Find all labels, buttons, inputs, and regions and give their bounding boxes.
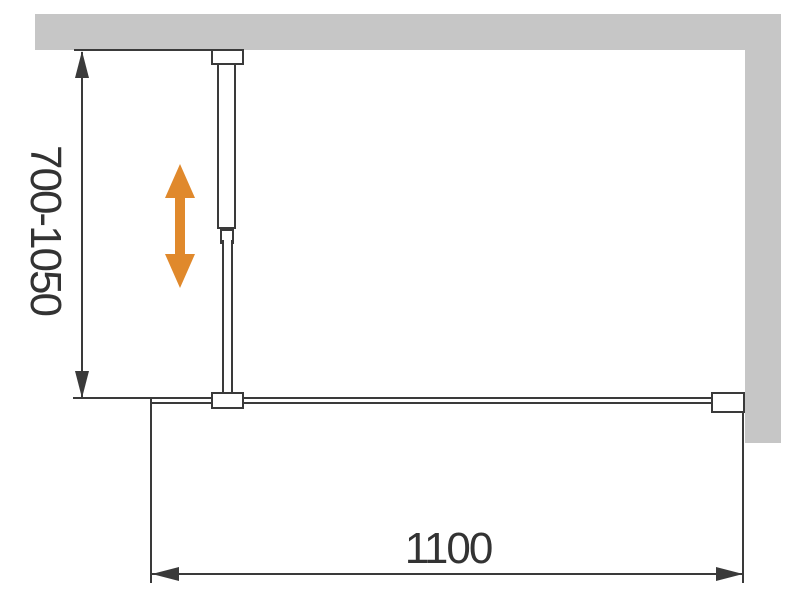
extension-line-bottom-right bbox=[742, 413, 744, 583]
extension-line-top bbox=[74, 49, 212, 51]
arrowhead-left-icon bbox=[152, 567, 179, 581]
vertical-dimension-label: 700-1050 bbox=[22, 80, 68, 380]
wall-right bbox=[745, 50, 781, 443]
horizontal-dimension-line bbox=[152, 573, 743, 575]
arrowhead-right-icon bbox=[716, 567, 743, 581]
height-adjust-arrow-icon bbox=[163, 164, 197, 288]
glass-clamp-bracket bbox=[211, 392, 244, 409]
arrowhead-down-icon bbox=[75, 371, 89, 398]
arrowhead-up-icon bbox=[75, 51, 89, 78]
wall-top bbox=[35, 14, 781, 50]
vertical-dimension-line bbox=[81, 52, 83, 398]
support-bar-inner-rod bbox=[222, 240, 233, 394]
support-bar-outer-tube bbox=[217, 63, 236, 229]
installation-diagram: 700-1050 1100 bbox=[0, 0, 800, 599]
horizontal-dimension-label: 1100 bbox=[298, 526, 598, 572]
glass-wall-profile bbox=[711, 392, 745, 413]
glass-panel-top-edge bbox=[73, 397, 745, 399]
extension-line-bottom-left bbox=[150, 399, 152, 583]
wall-mount-bracket bbox=[211, 49, 244, 65]
